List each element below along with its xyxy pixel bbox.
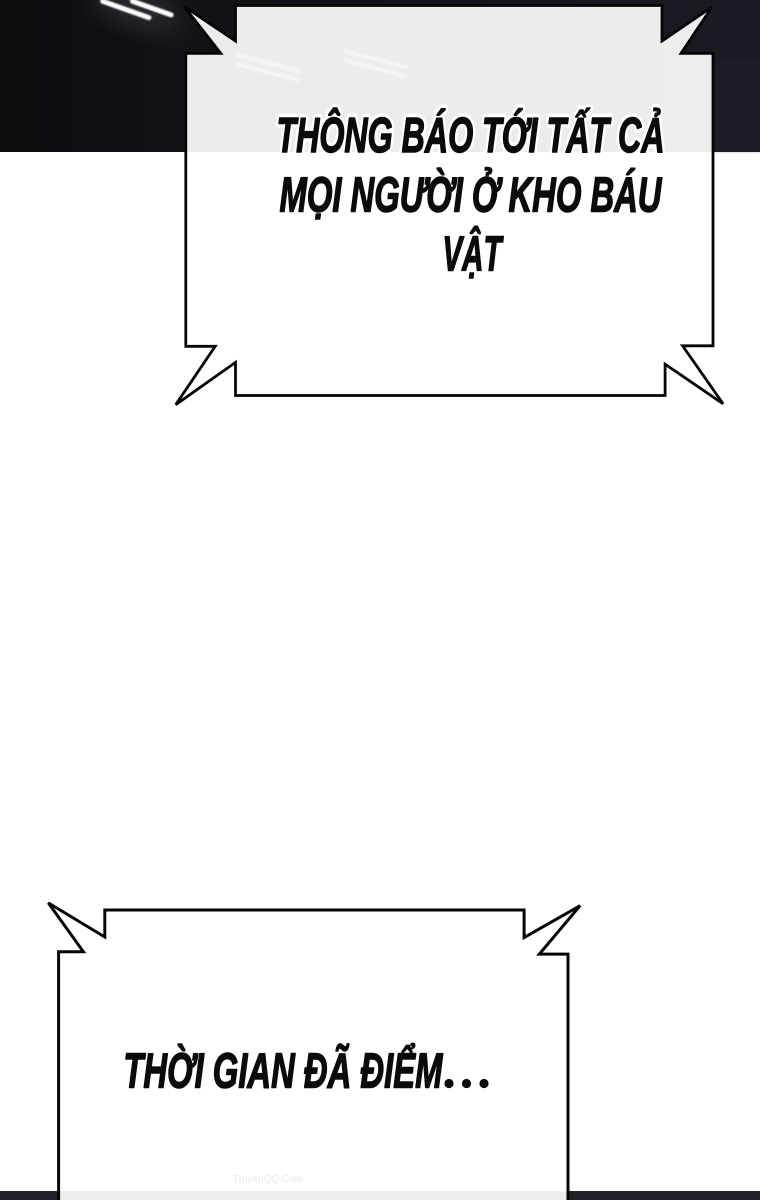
svg-text:VẬT: VẬT [443,227,504,282]
svg-text:MỌI NGƯỜI Ở KHO BÁU: MỌI NGƯỜI Ở KHO BÁU [280,167,663,222]
svg-text:THÔNG BÁO TỚI TẤT CẢ: THÔNG BÁO TỚI TẤT CẢ [277,108,665,163]
svg-text:THỜI GIAN ĐÃ ĐIỂM: THỜI GIAN ĐÃ ĐIỂM [123,1043,443,1098]
svg-text:TruyenQQ.Com: TruyenQQ.Com [233,1174,303,1185]
